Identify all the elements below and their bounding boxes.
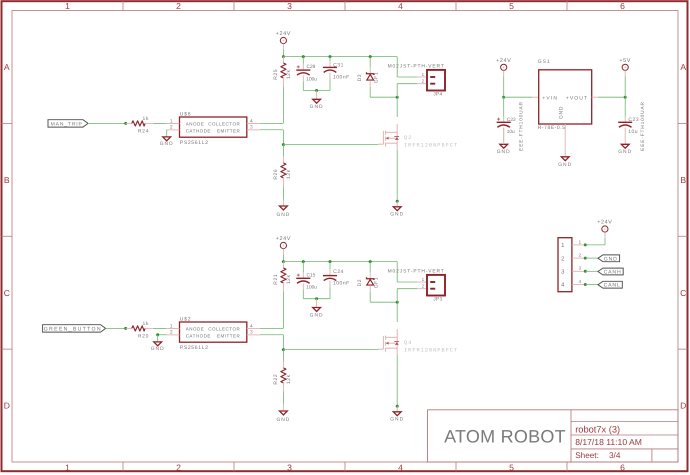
svg-text:C22: C22 bbox=[507, 117, 516, 123]
svg-text:C23: C23 bbox=[628, 117, 639, 123]
svg-text:GND: GND bbox=[497, 149, 511, 155]
svg-text:R20: R20 bbox=[138, 333, 149, 339]
svg-text:COLLECTOR: COLLECTOR bbox=[208, 326, 240, 331]
svg-text:100u: 100u bbox=[306, 285, 317, 291]
svg-text:10u: 10u bbox=[507, 129, 515, 135]
svg-text:GND: GND bbox=[558, 106, 564, 120]
svg-text:robot7x (3): robot7x (3) bbox=[575, 424, 620, 434]
svg-text:2: 2 bbox=[176, 462, 181, 472]
svg-text:EEE-FTH100UAR: EEE-FTH100UAR bbox=[640, 101, 646, 151]
svg-text:GND: GND bbox=[604, 256, 618, 262]
svg-text:6: 6 bbox=[620, 1, 625, 11]
svg-text:Q2: Q2 bbox=[404, 135, 412, 141]
svg-text:3: 3 bbox=[250, 125, 253, 131]
svg-text:D: D bbox=[680, 401, 686, 411]
svg-text:CATHODE: CATHODE bbox=[186, 129, 211, 134]
svg-text:GND: GND bbox=[310, 104, 324, 110]
svg-text:GND: GND bbox=[151, 346, 165, 352]
svg-text:100nF: 100nF bbox=[333, 281, 350, 287]
svg-text:+5V: +5V bbox=[619, 58, 631, 64]
svg-text:ANODE: ANODE bbox=[186, 121, 205, 126]
svg-text:1: 1 bbox=[65, 1, 70, 11]
svg-text:+VIN: +VIN bbox=[542, 95, 558, 101]
svg-text:M02JST-PTH-VERT: M02JST-PTH-VERT bbox=[388, 269, 445, 275]
svg-text:GF1: GF1 bbox=[374, 277, 380, 288]
svg-text:C15: C15 bbox=[307, 272, 316, 278]
svg-text:+24V: +24V bbox=[276, 236, 291, 242]
svg-text:12k: 12k bbox=[286, 69, 292, 79]
svg-text:5: 5 bbox=[509, 1, 514, 11]
svg-text:100nF: 100nF bbox=[333, 74, 350, 80]
svg-text:1: 1 bbox=[65, 462, 70, 472]
svg-text:4: 4 bbox=[398, 1, 403, 11]
svg-text:3: 3 bbox=[287, 1, 292, 11]
svg-text:Q4: Q4 bbox=[404, 340, 412, 346]
svg-text:CANL: CANL bbox=[604, 283, 621, 289]
svg-text:ANODE: ANODE bbox=[186, 326, 205, 331]
svg-text:JP4: JP4 bbox=[433, 92, 442, 98]
svg-text:3: 3 bbox=[250, 330, 253, 336]
svg-text:+24V: +24V bbox=[496, 58, 511, 64]
svg-text:GND: GND bbox=[618, 149, 632, 155]
svg-text:4: 4 bbox=[250, 118, 253, 124]
svg-text:GND: GND bbox=[390, 417, 404, 423]
svg-text:B: B bbox=[680, 175, 686, 185]
svg-text:R26: R26 bbox=[273, 169, 279, 180]
svg-text:R25: R25 bbox=[273, 69, 279, 80]
svg-text:12k: 12k bbox=[286, 374, 292, 384]
svg-text:C31: C31 bbox=[333, 63, 344, 69]
svg-text:4: 4 bbox=[398, 462, 403, 472]
svg-text:GS1: GS1 bbox=[538, 59, 551, 65]
svg-text:+24V: +24V bbox=[276, 31, 291, 37]
svg-text:GREEN_BUTTON: GREEN_BUTTON bbox=[44, 326, 102, 332]
svg-text:+VOUT: +VOUT bbox=[566, 95, 588, 101]
svg-text:5: 5 bbox=[509, 462, 514, 472]
svg-text:D3: D3 bbox=[357, 74, 363, 82]
svg-text:EMITTER: EMITTER bbox=[217, 334, 240, 339]
svg-text:4: 4 bbox=[250, 323, 253, 329]
svg-text:C29: C29 bbox=[307, 64, 316, 70]
svg-text:1k: 1k bbox=[142, 116, 148, 122]
svg-text:U$2: U$2 bbox=[180, 317, 192, 323]
svg-text:3: 3 bbox=[287, 462, 292, 472]
svg-text:CATHODE: CATHODE bbox=[186, 334, 211, 339]
svg-text:D: D bbox=[4, 401, 10, 411]
svg-text:U$6: U$6 bbox=[180, 112, 192, 118]
svg-text:R21: R21 bbox=[273, 274, 279, 285]
svg-text:6: 6 bbox=[620, 462, 625, 472]
svg-text:2: 2 bbox=[170, 125, 173, 131]
svg-text:A: A bbox=[4, 62, 10, 72]
svg-text:GND: GND bbox=[160, 141, 174, 147]
svg-text:GND: GND bbox=[276, 417, 290, 423]
svg-text:GND: GND bbox=[310, 312, 324, 318]
svg-text:JP3: JP3 bbox=[433, 297, 442, 303]
svg-text:ATOM ROBOT: ATOM ROBOT bbox=[444, 427, 566, 447]
svg-text:B: B bbox=[4, 175, 10, 185]
svg-text:2: 2 bbox=[176, 1, 181, 11]
svg-text:1k: 1k bbox=[142, 321, 148, 327]
svg-text:GND: GND bbox=[390, 212, 404, 218]
svg-text:M02JST-PTH-VERT: M02JST-PTH-VERT bbox=[388, 64, 445, 70]
svg-text:3/4: 3/4 bbox=[609, 451, 621, 460]
svg-text:D2: D2 bbox=[357, 279, 363, 287]
svg-text:100u: 100u bbox=[306, 76, 317, 82]
svg-text:R-78E-0.5: R-78E-0.5 bbox=[538, 125, 566, 131]
svg-text:EMITTER: EMITTER bbox=[217, 129, 240, 134]
svg-text:GND: GND bbox=[558, 162, 572, 168]
svg-text:GND: GND bbox=[276, 212, 290, 218]
svg-text:IRFR120NPBFCT: IRFR120NPBFCT bbox=[404, 347, 458, 353]
svg-text:R24: R24 bbox=[138, 128, 149, 134]
svg-text:+24V: +24V bbox=[597, 220, 612, 226]
svg-text:PS2561L2: PS2561L2 bbox=[180, 140, 209, 146]
svg-text:MAN_TRIP: MAN_TRIP bbox=[51, 121, 83, 127]
svg-text:12k: 12k bbox=[286, 169, 292, 179]
svg-text:C: C bbox=[680, 288, 686, 298]
svg-text:CANH: CANH bbox=[604, 270, 622, 276]
svg-text:8/17/18 11:10 AM: 8/17/18 11:10 AM bbox=[575, 437, 642, 447]
svg-text:GF1: GF1 bbox=[374, 72, 380, 83]
svg-text:COLLECTOR: COLLECTOR bbox=[208, 121, 240, 126]
svg-text:Sheet:: Sheet: bbox=[575, 451, 599, 460]
svg-text:PS2561L2: PS2561L2 bbox=[180, 345, 209, 351]
svg-text:C24: C24 bbox=[333, 269, 344, 275]
svg-text:EEE-FTH100UAR: EEE-FTH100UAR bbox=[519, 101, 525, 151]
svg-text:2: 2 bbox=[170, 330, 173, 336]
svg-text:1: 1 bbox=[170, 118, 173, 124]
svg-text:12k: 12k bbox=[286, 274, 292, 284]
svg-text:C: C bbox=[4, 288, 10, 298]
svg-text:A: A bbox=[680, 62, 686, 72]
svg-text:10u: 10u bbox=[628, 129, 638, 135]
svg-text:IRFR120NPBFCT: IRFR120NPBFCT bbox=[404, 142, 458, 148]
svg-text:R22: R22 bbox=[273, 374, 279, 385]
svg-text:1: 1 bbox=[170, 323, 173, 329]
